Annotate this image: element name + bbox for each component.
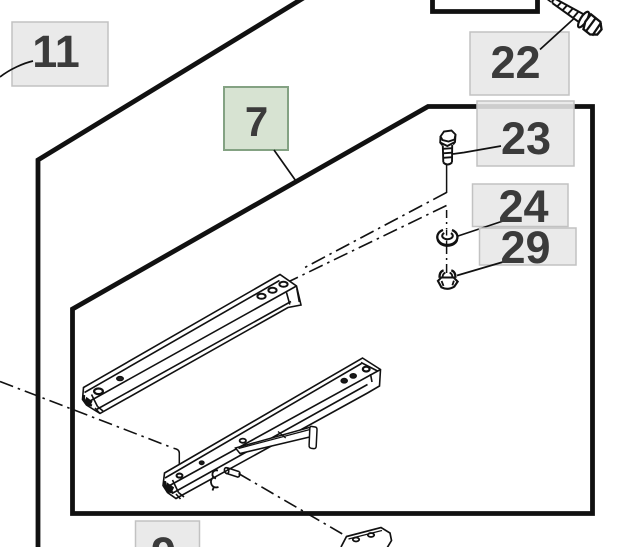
svg-text:7: 7 [245,98,268,145]
svg-text:11: 11 [32,26,80,77]
svg-text:29: 29 [500,222,550,273]
svg-text:23: 23 [501,113,551,164]
svg-text:22: 22 [490,37,540,88]
svg-text:9: 9 [151,528,176,547]
